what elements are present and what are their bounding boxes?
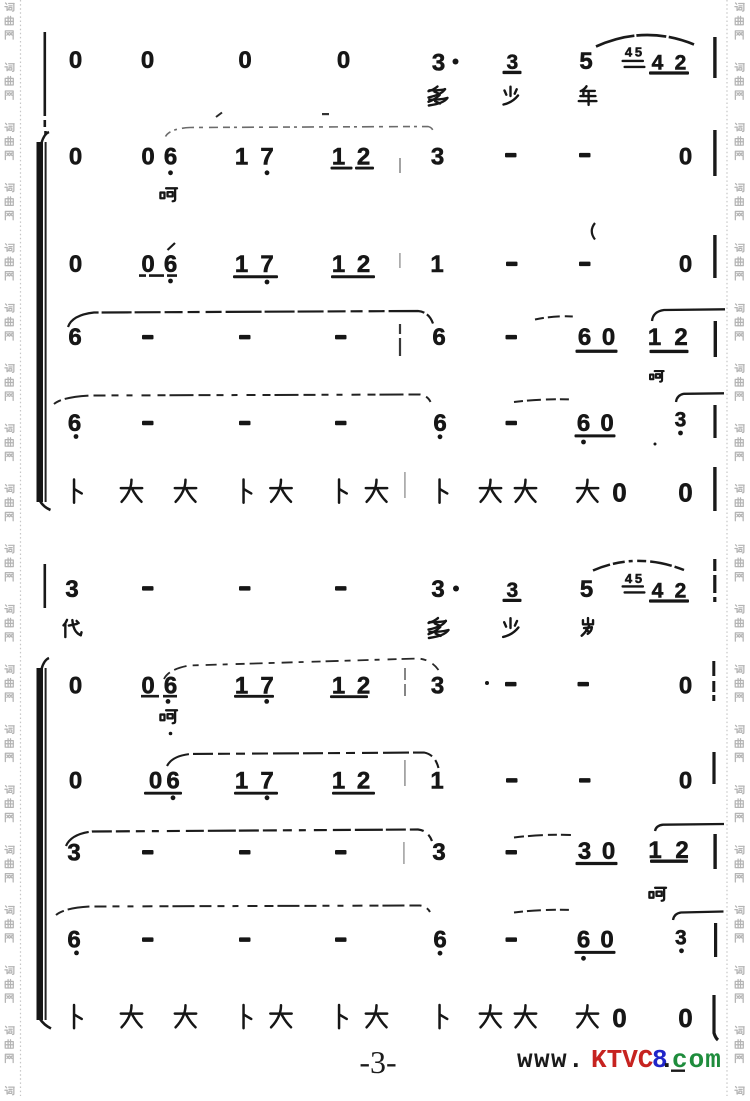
- svg-text:0: 0: [678, 1003, 692, 1033]
- svg-text:0: 0: [238, 47, 251, 74]
- svg-text:0: 0: [600, 410, 613, 437]
- svg-text:6: 6: [68, 324, 81, 351]
- svg-text:6: 6: [433, 927, 446, 954]
- svg-text:2: 2: [357, 768, 370, 795]
- svg-text:5: 5: [635, 45, 642, 60]
- svg-text:0: 0: [602, 324, 615, 351]
- svg-text:0: 0: [678, 478, 692, 508]
- svg-text:0: 0: [612, 478, 626, 508]
- svg-text:2: 2: [357, 144, 370, 171]
- svg-text:3: 3: [67, 840, 80, 867]
- svg-text:0: 0: [600, 927, 613, 954]
- svg-text:3: 3: [507, 579, 519, 602]
- svg-text:1: 1: [332, 144, 345, 171]
- svg-text:3: 3: [675, 927, 687, 950]
- svg-text:2: 2: [675, 580, 687, 603]
- svg-text:5: 5: [579, 48, 592, 75]
- svg-text:6: 6: [164, 144, 177, 171]
- svg-text:3: 3: [431, 673, 444, 700]
- svg-text:3: 3: [65, 576, 78, 603]
- svg-text:0: 0: [679, 673, 692, 700]
- svg-text:0: 0: [141, 47, 154, 74]
- svg-text:7: 7: [260, 251, 273, 278]
- svg-text:www.: www.: [517, 1045, 585, 1075]
- svg-text:2: 2: [674, 324, 687, 351]
- svg-text:5: 5: [580, 576, 593, 603]
- svg-text:0: 0: [69, 768, 82, 795]
- svg-text:3: 3: [431, 576, 444, 603]
- svg-text:6: 6: [577, 410, 590, 437]
- svg-text:3: 3: [578, 838, 591, 865]
- svg-text:3: 3: [432, 50, 445, 77]
- svg-text:6: 6: [164, 251, 177, 278]
- svg-text:0: 0: [679, 144, 692, 171]
- svg-text:1: 1: [430, 251, 443, 278]
- svg-text:0: 0: [612, 1003, 626, 1033]
- svg-text:1: 1: [430, 768, 443, 795]
- svg-text:1: 1: [332, 251, 345, 278]
- svg-text:6: 6: [166, 768, 179, 795]
- svg-text:0: 0: [69, 47, 82, 74]
- svg-text:6: 6: [578, 324, 591, 351]
- svg-text:4: 4: [652, 52, 664, 75]
- svg-text:7: 7: [260, 144, 273, 171]
- svg-text:4: 4: [625, 571, 633, 586]
- svg-text:4: 4: [625, 45, 633, 60]
- svg-text:KTVC: KTVC: [591, 1045, 653, 1075]
- svg-text:0: 0: [141, 251, 154, 278]
- svg-text:0: 0: [69, 673, 82, 700]
- svg-text:4: 4: [652, 580, 664, 603]
- svg-text:7: 7: [260, 768, 273, 795]
- svg-text:0: 0: [69, 144, 82, 171]
- svg-text:6: 6: [433, 410, 446, 437]
- svg-text:3: 3: [432, 839, 445, 866]
- svg-text:1: 1: [235, 251, 248, 278]
- svg-text:0: 0: [679, 251, 692, 278]
- svg-text:0: 0: [679, 768, 692, 795]
- svg-text:2: 2: [675, 52, 687, 75]
- svg-text:5: 5: [635, 571, 642, 586]
- svg-text:0: 0: [602, 838, 615, 865]
- svg-text:3: 3: [507, 51, 519, 74]
- svg-text:6: 6: [577, 927, 590, 954]
- svg-text:6: 6: [432, 324, 445, 351]
- svg-text:0: 0: [141, 144, 154, 171]
- svg-text:3: 3: [431, 144, 444, 171]
- svg-text:0: 0: [149, 768, 162, 795]
- svg-text:-3-: -3-: [359, 1044, 396, 1080]
- svg-text:6: 6: [68, 410, 81, 437]
- svg-text:0: 0: [337, 47, 350, 74]
- svg-text:3: 3: [675, 409, 687, 432]
- svg-text:1: 1: [332, 768, 345, 795]
- svg-text:6: 6: [67, 927, 80, 954]
- svg-text:1: 1: [235, 144, 248, 171]
- svg-text:0: 0: [69, 251, 82, 278]
- svg-text:1: 1: [648, 324, 661, 351]
- svg-text:1: 1: [235, 768, 248, 795]
- svg-text:2: 2: [357, 251, 370, 278]
